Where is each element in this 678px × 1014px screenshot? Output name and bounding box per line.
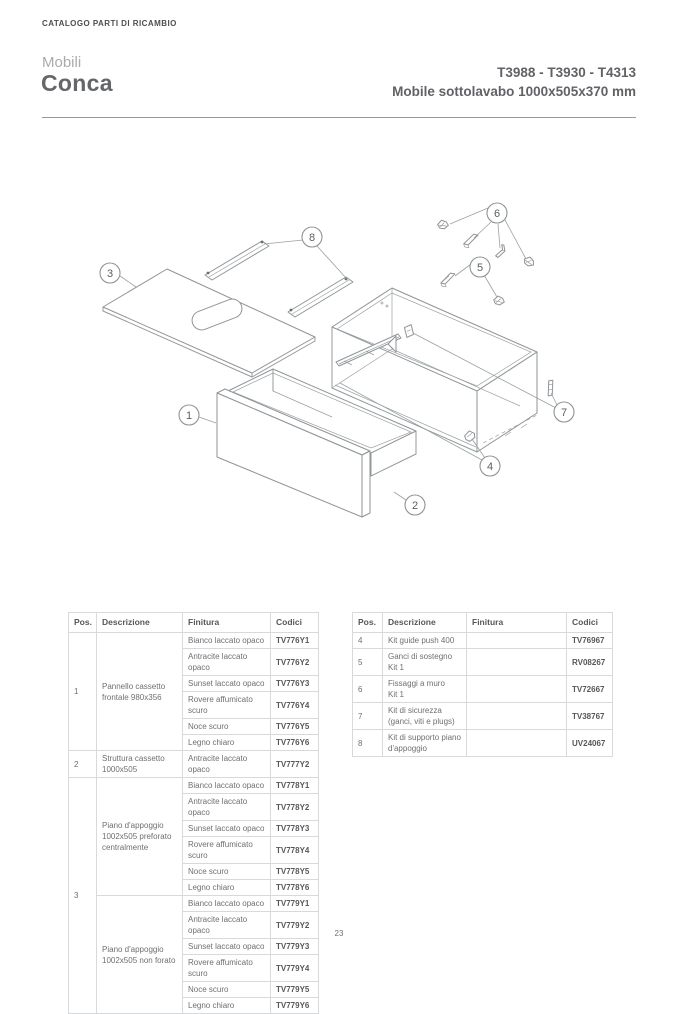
- pos-cell: 7: [353, 703, 383, 730]
- pos-cell: 2: [69, 751, 97, 778]
- table-row: 7Kit di sicurezza (ganci, viti e plugs)T…: [353, 703, 613, 730]
- table-row: 6Fissaggi a muro Kit 1TV72667: [353, 676, 613, 703]
- col-header-descrizione: Descrizione: [383, 613, 467, 633]
- callout-1: 1: [179, 405, 199, 425]
- code-cell: TV776Y1: [271, 633, 319, 649]
- code-cell: TV778Y4: [271, 837, 319, 864]
- finish-cell: Antracite laccato opaco: [183, 751, 271, 778]
- top-panel-part: [103, 269, 315, 377]
- finish-cell: Sunset laccato opaco: [183, 821, 271, 837]
- col-header-descrizione: Descrizione: [97, 613, 183, 633]
- callout-3-number: 3: [107, 268, 113, 280]
- table-row: 8Kit di supporto piano d'appoggioUV24067: [353, 730, 613, 757]
- finish-cell: [467, 730, 567, 757]
- code-cell: TV776Y5: [271, 719, 319, 735]
- code-cell: TV38767: [567, 703, 613, 730]
- pos-cell: 4: [353, 633, 383, 649]
- catalog-title: CATALOGO PARTI DI RICAMBIO: [42, 19, 177, 28]
- code-cell: RV08267: [567, 649, 613, 676]
- callout-8-number: 8: [309, 232, 315, 244]
- finishes-table-container: Pos. Descrizione Finitura Codici 1Pannel…: [68, 612, 318, 1014]
- code-cell: TV779Y6: [271, 998, 319, 1014]
- code-cell: TV777Y2: [271, 751, 319, 778]
- finish-cell: Bianco laccato opaco: [183, 896, 271, 912]
- description-cell: Struttura cassetto 1000x505: [97, 751, 183, 778]
- series-label: Mobili: [42, 54, 81, 71]
- code-cell: TV779Y3: [271, 939, 319, 955]
- code-cell: TV776Y3: [271, 676, 319, 692]
- finish-cell: Legno chiaro: [183, 998, 271, 1014]
- finish-cell: Legno chiaro: [183, 880, 271, 896]
- code-cell: TV776Y6: [271, 735, 319, 751]
- finish-cell: [467, 703, 567, 730]
- product-subtitle: Mobile sottolavabo 1000x505x370 mm: [392, 82, 636, 101]
- callout-4-number: 4: [487, 461, 493, 473]
- code-cell: TV778Y6: [271, 880, 319, 896]
- finish-cell: Legno chiaro: [183, 735, 271, 751]
- pos-cell: 5: [353, 649, 383, 676]
- callout-5-number: 5: [477, 262, 483, 274]
- finishes-table: Pos. Descrizione Finitura Codici 1Pannel…: [68, 612, 319, 1014]
- description-cell: Kit di supporto piano d'appoggio: [383, 730, 467, 757]
- pos-cell: 1: [69, 633, 97, 751]
- code-cell: TV778Y2: [271, 794, 319, 821]
- finish-cell: Rovere affumicato scuro: [183, 837, 271, 864]
- code-cell: UV24067: [567, 730, 613, 757]
- table-header-row: Pos. Descrizione Finitura Codici: [69, 613, 319, 633]
- kits-table-container: Pos. Descrizione Finitura Codici 4Kit gu…: [352, 612, 612, 757]
- finish-cell: Bianco laccato opaco: [183, 778, 271, 794]
- col-header-codici: Codici: [271, 613, 319, 633]
- guide-kit-bracket-part: [464, 430, 477, 443]
- callout-7-number: 7: [561, 407, 567, 419]
- finish-cell: [467, 676, 567, 703]
- code-cell: TV778Y1: [271, 778, 319, 794]
- callout-4: 4: [480, 456, 500, 476]
- code-cell: TV778Y5: [271, 864, 319, 880]
- table-row: 1Pannello cassetto frontale 980x356Bianc…: [69, 633, 319, 649]
- description-cell: Pannello cassetto frontale 980x356: [97, 633, 183, 751]
- table-header-row: Pos. Descrizione Finitura Codici: [353, 613, 613, 633]
- description-cell: Piano d'appoggio 1002x505 preforato cent…: [97, 778, 183, 896]
- col-header-pos: Pos.: [353, 613, 383, 633]
- callout-6: 6: [487, 203, 507, 223]
- callout-7: 7: [554, 402, 574, 422]
- description-cell: Fissaggi a muro Kit 1: [383, 676, 467, 703]
- description-cell: Kit di sicurezza (ganci, viti e plugs): [383, 703, 467, 730]
- finish-cell: [467, 633, 567, 649]
- model-title-block: T3988 - T3930 - T4313 Mobile sottolavabo…: [392, 63, 636, 101]
- description-cell: Piano d'appoggio 1002x505 non forato: [97, 896, 183, 1014]
- finish-cell: Rovere affumicato scuro: [183, 692, 271, 719]
- model-codes: T3988 - T3930 - T4313: [392, 63, 636, 82]
- header-divider: [42, 117, 636, 118]
- table-row: 5Ganci di sostegno Kit 1RV08267: [353, 649, 613, 676]
- col-header-codici: Codici: [567, 613, 613, 633]
- code-cell: TV779Y1: [271, 896, 319, 912]
- code-cell: TV776Y4: [271, 692, 319, 719]
- col-header-pos: Pos.: [69, 613, 97, 633]
- product-name: Conca: [41, 70, 113, 97]
- description-cell: Kit guide push 400: [383, 633, 467, 649]
- finish-cell: Antracite laccato opaco: [183, 794, 271, 821]
- kits-table: Pos. Descrizione Finitura Codici 4Kit gu…: [352, 612, 613, 757]
- finish-cell: Antracite laccato opaco: [183, 649, 271, 676]
- support-hooks-part: [439, 272, 505, 306]
- description-cell: Ganci di sostegno Kit 1: [383, 649, 467, 676]
- table-row: 4Kit guide push 400TV76967: [353, 633, 613, 649]
- finish-cell: Bianco laccato opaco: [183, 633, 271, 649]
- code-cell: TV778Y3: [271, 821, 319, 837]
- code-cell: TV779Y5: [271, 982, 319, 998]
- table-row: 2Struttura cassetto 1000x505Antracite la…: [69, 751, 319, 778]
- code-cell: TV776Y2: [271, 649, 319, 676]
- table-row: Piano d'appoggio 1002x505 non foratoBian…: [69, 896, 319, 912]
- callout-5: 5: [470, 257, 490, 277]
- callout-1-number: 1: [186, 410, 192, 422]
- finish-cell: Noce scuro: [183, 719, 271, 735]
- finish-cell: Noce scuro: [183, 864, 271, 880]
- finish-cell: Sunset laccato opaco: [183, 676, 271, 692]
- table-row: 3Piano d'appoggio 1002x505 preforato cen…: [69, 778, 319, 794]
- finish-cell: [467, 649, 567, 676]
- pos-cell: 8: [353, 730, 383, 757]
- col-header-finitura: Finitura: [183, 613, 271, 633]
- exploded-view-diagram: 1 2 3 4 5 6 7 8: [0, 140, 678, 585]
- callout-8: 8: [302, 227, 322, 247]
- callout-3: 3: [100, 263, 120, 283]
- page-number: 23: [0, 929, 678, 938]
- finish-cell: Sunset laccato opaco: [183, 939, 271, 955]
- col-header-finitura: Finitura: [467, 613, 567, 633]
- callout-2: 2: [405, 495, 425, 515]
- code-cell: TV76967: [567, 633, 613, 649]
- pos-cell: 3: [69, 778, 97, 1014]
- callout-6-number: 6: [494, 208, 500, 220]
- callout-2-number: 2: [412, 500, 418, 512]
- finish-cell: Noce scuro: [183, 982, 271, 998]
- catalog-page: { "page": { "eyebrow": "CATALOGO PARTI D…: [0, 0, 678, 959]
- pos-cell: 6: [353, 676, 383, 703]
- code-cell: TV72667: [567, 676, 613, 703]
